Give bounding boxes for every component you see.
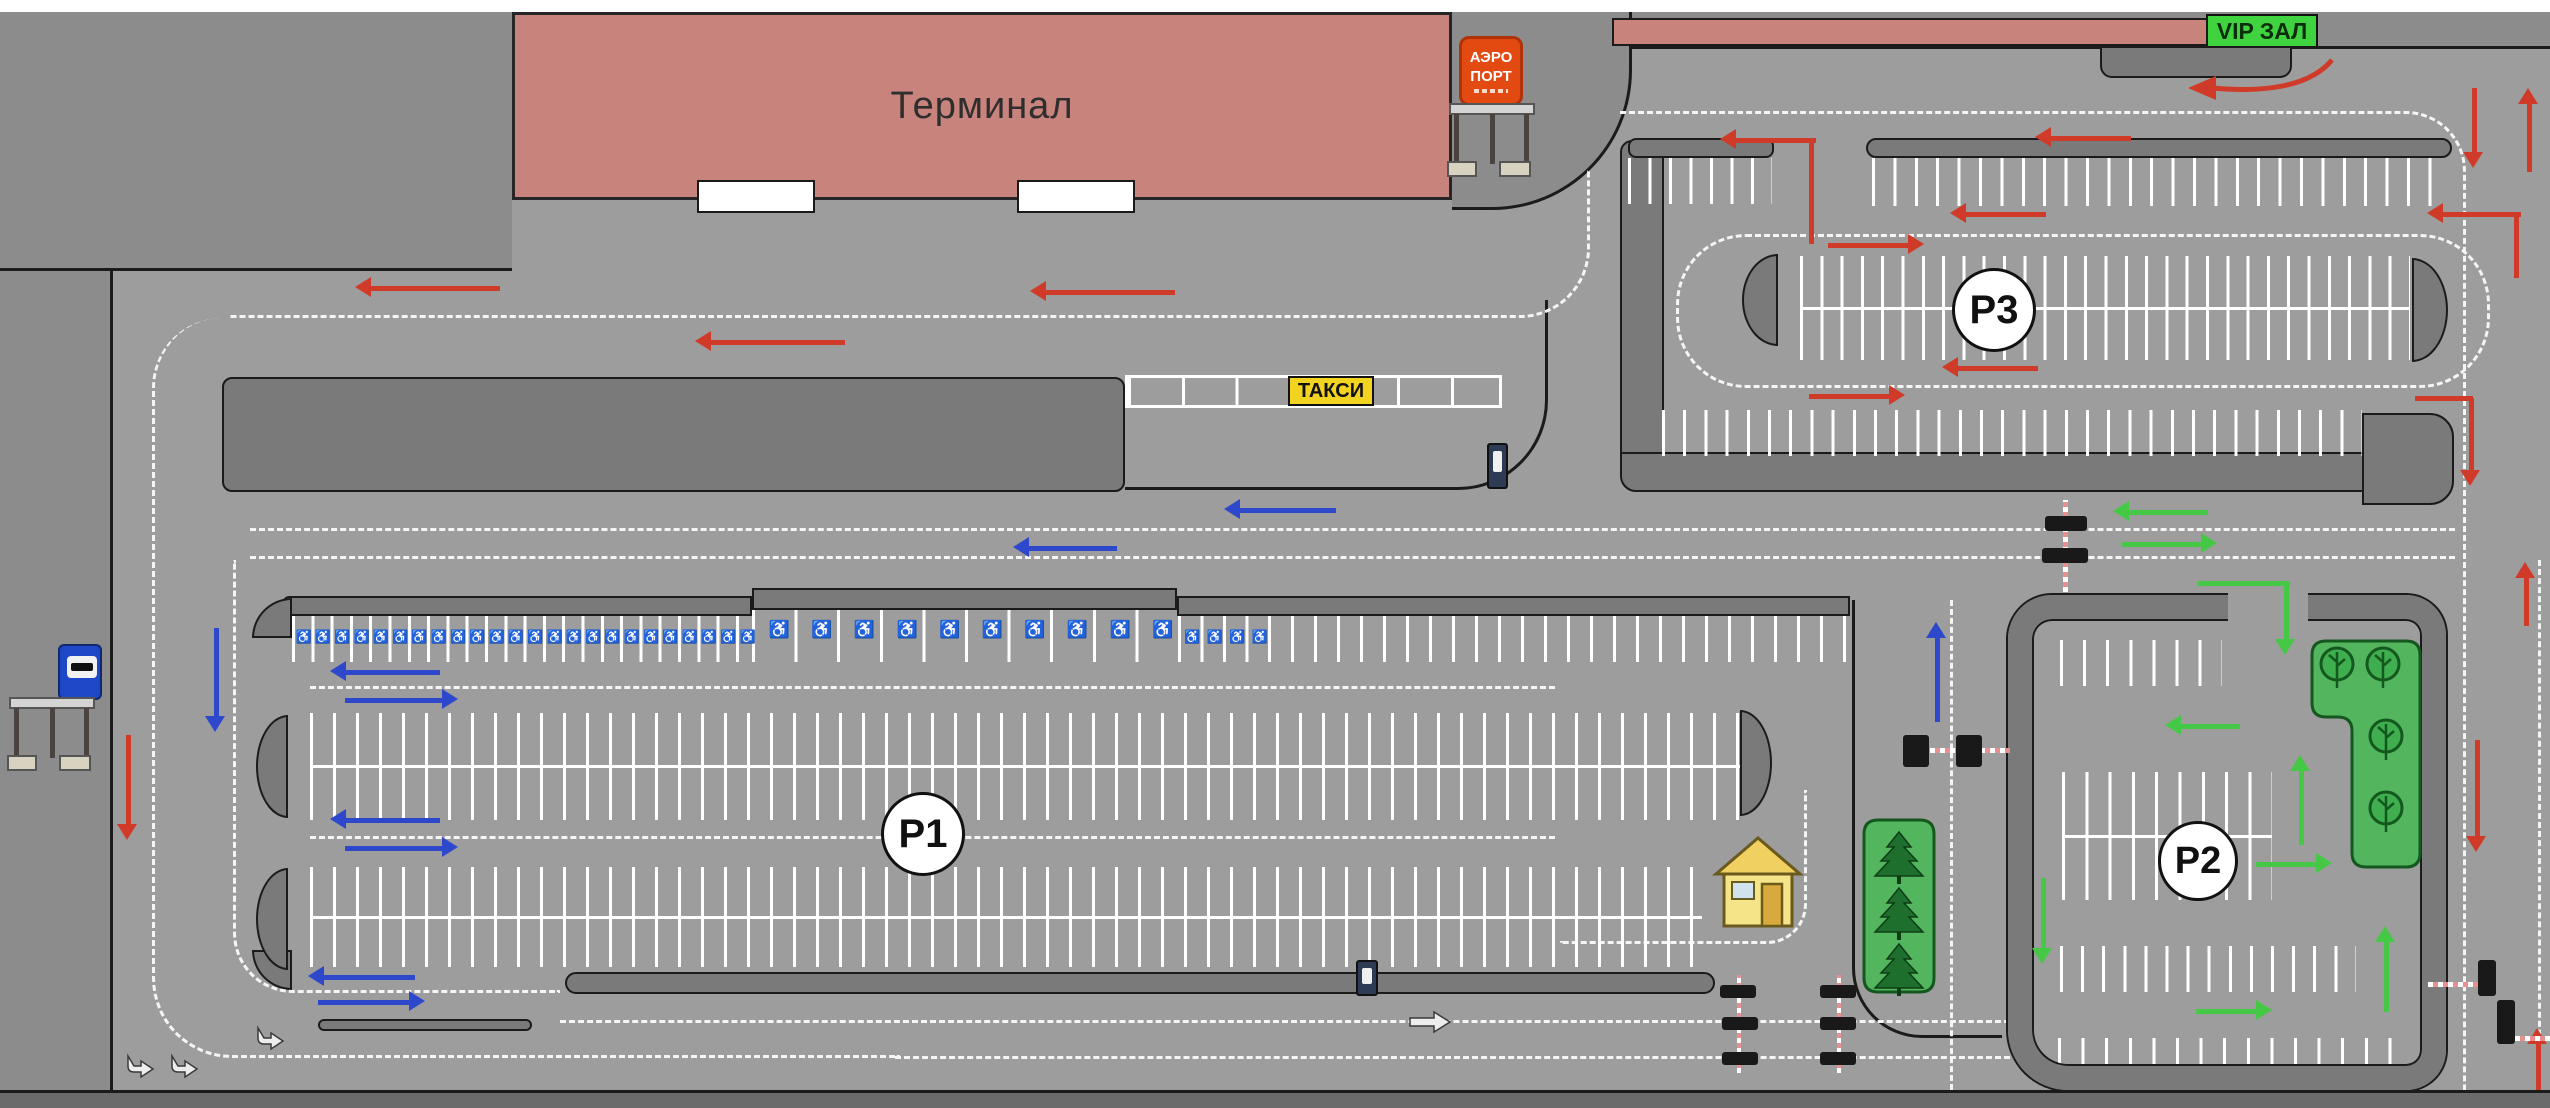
wheelchair-icon: ♿ [564, 629, 583, 645]
vertical-road-lane [1950, 600, 1953, 1090]
wheelchair-icon: ♿ [661, 629, 680, 645]
wheelchair-icon: ♿ [1181, 629, 1204, 645]
boom-barrier-base [2497, 1000, 2515, 1044]
boom-barrier-arm [2063, 500, 2068, 592]
traffic-arrow-blue-head [1013, 537, 1029, 557]
traffic-arrow-red-head [2427, 203, 2443, 223]
arrow-tail [2514, 216, 2519, 278]
p3-lower-stalls [1662, 410, 2362, 456]
traffic-arrow-blue-line [214, 628, 219, 716]
payment-kiosk [1487, 443, 1508, 489]
traffic-arrow-red-head [1942, 357, 1958, 377]
boom-barrier-arm [2515, 1036, 2550, 1041]
boom-barrier-base [1903, 735, 1929, 767]
wheelchair-icon: ♿ [487, 629, 506, 645]
traffic-arrow-green-line [2041, 878, 2046, 948]
airport-parking-map: Терминал VIP ЗАЛ АЭРО ПОРТ ТАКСИ P1 P2 P… [0, 0, 2550, 1108]
boom-barrier-base [2042, 548, 2088, 563]
traffic-arrow-blue-line [345, 846, 442, 851]
traffic-arrow-red-head [2460, 470, 2480, 486]
traffic-arrow-green-line [2256, 862, 2316, 867]
wheelchair-icon: ♿ [603, 629, 622, 645]
wheelchair-icon: ♿ [526, 629, 545, 645]
traffic-arrow-green-head [2375, 926, 2395, 942]
wheelchair-icon: ♿ [1056, 620, 1099, 640]
traffic-arrow-green-head [2316, 853, 2332, 873]
traffic-arrow-blue-line [1029, 546, 1117, 551]
traffic-arrow-red-head [1720, 129, 1736, 149]
traffic-arrow-blue-head [330, 661, 346, 681]
traffic-arrow-blue-head [330, 809, 346, 829]
kiosk-screen [1362, 968, 1372, 984]
wheelchair-icon: ♿ [468, 629, 487, 645]
traffic-arrow-red-line [1966, 212, 2046, 217]
boom-barrier-base [1722, 1017, 1758, 1030]
traffic-arrow-blue-line [1240, 508, 1336, 513]
wheelchair-icon: ♿ [371, 629, 390, 645]
traffic-arrow-green-head [2256, 1000, 2272, 1020]
traffic-arrow-red-head [2515, 562, 2535, 578]
traffic-arrow-green-line [2181, 724, 2240, 729]
boom-barrier-base [2478, 960, 2496, 996]
traffic-arrow-red-line [1828, 243, 1908, 248]
traffic-arrow-green-head [2113, 501, 2129, 521]
airport-sign: АЭРО ПОРТ [1459, 36, 1523, 106]
traffic-arrow-red-line [2536, 1044, 2541, 1090]
zone-label-p2: P2 [2158, 821, 2238, 901]
traffic-arrow-green-head [2165, 715, 2181, 735]
traffic-arrow-red-head [1889, 385, 1905, 405]
wheelchair-icon: ♿ [758, 620, 801, 640]
traffic-arrow-blue-line [346, 670, 440, 675]
traffic-arrow-red-head [1950, 203, 1966, 223]
wheelchair-icon: ♿ [1014, 620, 1057, 640]
right-road-lane-2 [2538, 560, 2541, 1090]
traffic-arrow-red-head [2463, 152, 2483, 168]
traffic-arrow-red-line [1736, 138, 1816, 143]
bus-stop-sign [58, 644, 102, 700]
wheelchair-icon: ♿ [719, 629, 738, 645]
traffic-arrow-green-line [2299, 771, 2304, 845]
band-bottom [0, 1090, 2550, 1108]
traffic-arrow-red-line [2469, 398, 2474, 470]
traffic-arrow-red-line [1958, 366, 2038, 371]
traffic-arrow-blue-line [324, 975, 415, 980]
wheelchair-icon: ♿ [391, 629, 410, 645]
bottom-lane-1 [560, 1020, 2010, 1023]
wheelchair-icon: ♿ [1204, 629, 1227, 645]
traffic-arrow-red-line [2472, 88, 2477, 152]
traffic-arrow-green-head [2275, 639, 2295, 655]
airport-sign-smalltext [1474, 89, 1508, 93]
traffic-arrow-green-head [2290, 755, 2310, 771]
traffic-arrow-red-head [1030, 281, 1046, 301]
traffic-arrow-blue-line [346, 818, 440, 823]
traffic-arrow-red-line [1809, 394, 1889, 399]
traffic-arrow-red-head [695, 331, 711, 351]
wheelchair-icon: ♿ [1249, 629, 1272, 645]
wheelchair-icon: ♿ [1141, 620, 1184, 640]
traffic-arrow-blue-head [308, 966, 324, 986]
arrow-tail [1809, 142, 1814, 244]
traffic-arrow-green-head [2032, 948, 2052, 964]
zone-label-p1: P1 [881, 792, 965, 876]
wheelchair-icon: ♿ [641, 629, 660, 645]
traffic-arrow-red-line [2443, 212, 2521, 217]
wheelchair-icon: ♿ [928, 620, 971, 640]
bus-icon [71, 663, 93, 671]
boom-barrier-base [2045, 516, 2087, 531]
boom-barrier-base [1820, 985, 1856, 998]
traffic-arrow-red-line [126, 735, 131, 824]
wheelchair-icon: ♿ [1099, 620, 1142, 640]
traffic-arrow-blue-line [318, 1000, 409, 1005]
wheelchair-icon: ♿ [738, 629, 757, 645]
boom-barrier-base [1820, 1017, 1856, 1030]
p3-upper-stalls-b [1872, 158, 2450, 206]
p3-upper-stalls-a [1628, 158, 1772, 204]
payment-kiosk [1356, 960, 1378, 996]
traffic-arrow-red-line [711, 340, 845, 345]
p1-row2-stalls [310, 867, 1702, 967]
wheelchair-icon: ♿ [333, 629, 352, 645]
band-top-white [0, 0, 2550, 12]
p1-top-stalls [1268, 616, 1846, 662]
terminal-label: Терминал [891, 85, 1074, 128]
traffic-arrow-blue-head [1224, 499, 1240, 519]
p3-island-stalls [1800, 256, 2410, 360]
traffic-arrow-blue-head [442, 837, 458, 857]
arrow-tail [2198, 581, 2290, 586]
traffic-arrow-red-head [1908, 234, 1924, 254]
wheelchair-icon: ♿ [313, 629, 332, 645]
wheelchair-icon: ♿ [410, 629, 429, 645]
kiosk-screen [1493, 451, 1502, 472]
traffic-arrow-red-head [355, 277, 371, 297]
wheelchair-icon: ♿ [622, 629, 641, 645]
p2-entrance-gap [2228, 591, 2308, 625]
traffic-arrow-blue-line [345, 698, 442, 703]
boom-barrier-base [1722, 1052, 1758, 1065]
boom-barrier-base [1720, 985, 1756, 998]
wheelchair-icon: ♿ [680, 629, 699, 645]
traffic-arrow-red-line [2475, 740, 2480, 836]
boom-barrier-arm [2428, 982, 2478, 987]
taxi-sign: ТАКСИ [1288, 376, 1374, 406]
p1-row1-stalls [310, 713, 1740, 820]
wheelchair-icon: ♿ [1226, 629, 1249, 645]
p1-aisle-1 [310, 686, 1555, 689]
wheelchair-icon: ♿ [699, 629, 718, 645]
traffic-arrow-red-line [2051, 136, 2131, 141]
traffic-arrow-blue-head [205, 716, 225, 732]
traffic-arrow-red-line [2524, 578, 2529, 626]
airport-sign-line2: ПОРТ [1470, 68, 1511, 85]
wheelchair-icon: ♿ [545, 629, 564, 645]
wheelchair-icon: ♿ [843, 620, 886, 640]
boom-barrier-base [1956, 735, 1982, 767]
traffic-arrow-green-line [2122, 542, 2201, 547]
boom-barrier-base [1820, 1052, 1856, 1065]
traffic-arrow-green-line [2384, 942, 2389, 1012]
traffic-arrow-red-head [117, 824, 137, 840]
traffic-arrow-green-line [2284, 583, 2289, 639]
traffic-arrow-red-line [371, 286, 500, 291]
traffic-arrow-green-line [2129, 510, 2208, 515]
wheelchair-icon: ♿ [801, 620, 844, 640]
vip-hall-sign: VIP ЗАЛ [2206, 14, 2318, 48]
wheelchair-icon: ♿ [429, 629, 448, 645]
wheelchair-icon: ♿ [506, 629, 525, 645]
traffic-arrow-blue-line [1935, 638, 1940, 722]
wheelchair-icon: ♿ [352, 629, 371, 645]
traffic-arrow-blue-head [1926, 622, 1946, 638]
wheelchair-icon: ♿ [448, 629, 467, 645]
arrow-tail [2415, 396, 2473, 401]
wheelchair-icon: ♿ [886, 620, 929, 640]
wheelchair-icon: ♿ [971, 620, 1014, 640]
traffic-arrow-green-line [2196, 1009, 2256, 1014]
traffic-arrow-blue-head [409, 991, 425, 1011]
wheelchair-icon: ♿ [584, 629, 603, 645]
traffic-arrow-blue-head [442, 689, 458, 709]
vip-platform [2100, 46, 2292, 78]
traffic-arrow-red-line [1046, 290, 1175, 295]
wheelchair-icon: ♿ [294, 629, 313, 645]
terminal-road-lane [230, 170, 1590, 318]
traffic-arrow-red-head [2518, 88, 2538, 104]
traffic-arrow-red-head [2466, 836, 2486, 852]
zone-label-p3: P3 [1952, 268, 2036, 352]
traffic-arrow-red-head [2035, 127, 2051, 147]
traffic-arrow-green-head [2201, 533, 2217, 553]
traffic-arrow-red-line [2527, 104, 2532, 172]
vip-building [1612, 18, 2208, 46]
airport-sign-line1: АЭРО [1470, 49, 1513, 66]
